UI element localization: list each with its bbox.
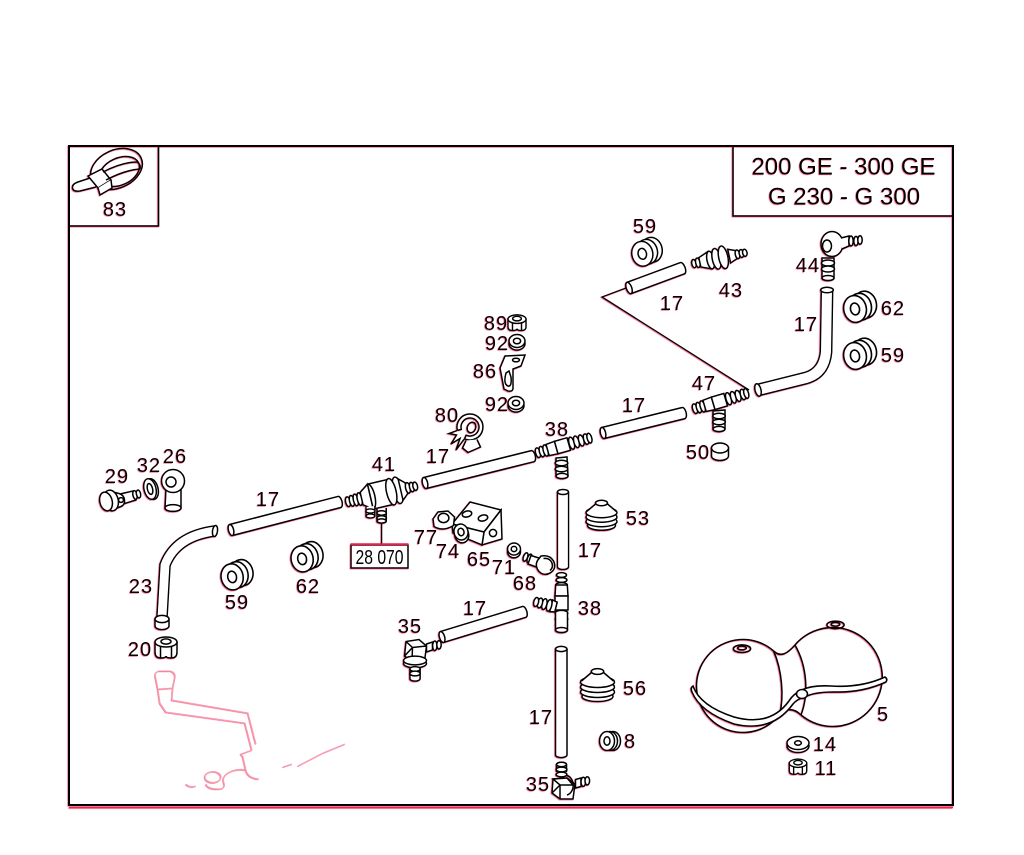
svg-text:43: 43 <box>719 280 743 302</box>
svg-text:92: 92 <box>485 394 509 416</box>
svg-text:17: 17 <box>578 540 602 562</box>
svg-text:17: 17 <box>794 314 818 336</box>
svg-text:38: 38 <box>545 419 569 441</box>
svg-text:G 230 - G 300: G 230 - G 300 <box>768 184 920 211</box>
svg-text:50: 50 <box>686 442 710 464</box>
svg-text:56: 56 <box>623 678 647 700</box>
svg-text:17: 17 <box>463 598 487 620</box>
svg-text:17: 17 <box>622 395 646 417</box>
svg-text:83: 83 <box>103 199 127 221</box>
svg-text:29: 29 <box>105 466 129 488</box>
svg-text:59: 59 <box>881 345 905 367</box>
svg-text:17: 17 <box>256 489 280 511</box>
svg-text:80: 80 <box>435 405 459 427</box>
svg-text:89: 89 <box>484 313 508 335</box>
svg-text:74: 74 <box>436 541 460 563</box>
svg-text:32: 32 <box>137 455 161 477</box>
svg-text:17: 17 <box>529 707 553 729</box>
svg-text:35: 35 <box>398 616 422 638</box>
svg-text:68: 68 <box>513 573 537 595</box>
svg-text:86: 86 <box>473 361 497 383</box>
svg-text:44: 44 <box>796 255 820 277</box>
svg-text:65: 65 <box>467 549 491 571</box>
svg-text:92: 92 <box>485 333 509 355</box>
svg-text:47: 47 <box>692 373 716 395</box>
svg-text:8: 8 <box>624 731 636 753</box>
svg-text:17: 17 <box>660 293 684 315</box>
svg-text:200 GE - 300 GE: 200 GE - 300 GE <box>751 154 935 181</box>
svg-text:5: 5 <box>877 704 889 726</box>
svg-text:17: 17 <box>426 446 450 468</box>
svg-text:14: 14 <box>813 734 837 756</box>
svg-text:62: 62 <box>881 298 905 320</box>
svg-text:28 070: 28 070 <box>356 547 404 569</box>
svg-text:20: 20 <box>128 639 152 661</box>
svg-text:41: 41 <box>372 454 396 476</box>
svg-text:26: 26 <box>163 446 187 468</box>
svg-text:53: 53 <box>626 508 650 530</box>
svg-text:77: 77 <box>414 527 438 549</box>
svg-text:62: 62 <box>296 576 320 598</box>
svg-text:38: 38 <box>578 598 602 620</box>
svg-text:11: 11 <box>815 758 838 780</box>
svg-text:59: 59 <box>633 216 657 238</box>
svg-text:23: 23 <box>129 576 153 598</box>
svg-text:59: 59 <box>225 592 249 614</box>
svg-text:35: 35 <box>526 774 550 796</box>
